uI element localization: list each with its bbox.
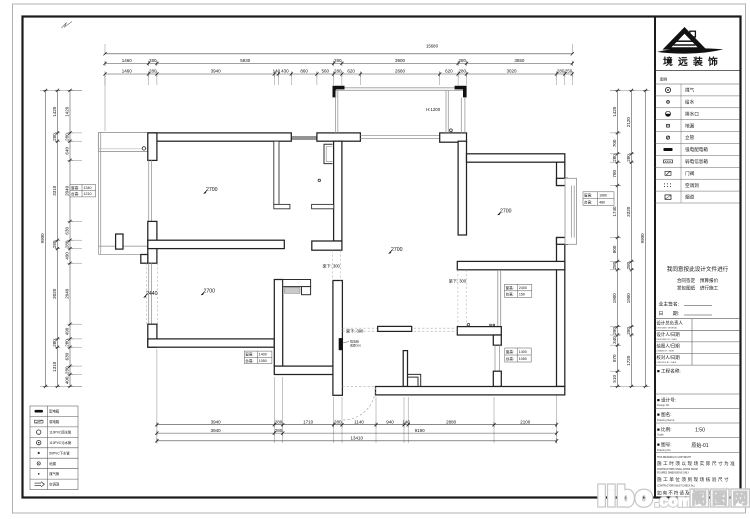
svg-text:我同意按此设计文件进行: 我同意按此设计文件进行: [667, 265, 729, 273]
svg-text:780: 780: [612, 170, 617, 178]
svg-text:地漏: 地漏: [685, 122, 695, 129]
svg-text:5930: 5930: [240, 58, 251, 63]
svg-text:1460: 1460: [122, 58, 133, 63]
svg-text:2660: 2660: [395, 69, 406, 74]
svg-text:280: 280: [334, 58, 342, 63]
svg-text:280: 280: [459, 69, 467, 74]
svg-text:15680: 15680: [426, 43, 439, 48]
svg-text:1400: 1400: [259, 353, 267, 357]
svg-text:2700: 2700: [204, 289, 216, 295]
svg-text:3940: 3940: [211, 69, 222, 74]
svg-text:560: 560: [321, 69, 329, 74]
svg-text:280: 280: [275, 428, 283, 433]
svg-text:DRAWN BY / DATE: DRAWN BY / DATE: [657, 350, 675, 353]
svg-text:设计总负责人: 设计总负责人: [657, 319, 684, 326]
svg-text:280: 280: [52, 133, 57, 141]
svg-text:2440: 2440: [146, 291, 158, 297]
svg-text:2100: 2100: [520, 419, 531, 424]
svg-text:1420: 1420: [612, 106, 617, 117]
svg-text:490: 490: [65, 327, 70, 335]
svg-text:280: 280: [334, 419, 342, 424]
svg-text:台高:: 台高:: [506, 356, 514, 361]
svg-text:1050: 1050: [259, 359, 267, 363]
svg-text:配电箱: 配电箱: [49, 409, 60, 414]
svg-text:台高:: 台高:: [584, 199, 592, 204]
svg-text:280: 280: [612, 154, 617, 162]
svg-text:弱电箱: 弱电箱: [49, 419, 60, 424]
svg-text:弱电信息箱: 弱电信息箱: [685, 158, 708, 165]
svg-text:设计人/日期: 设计人/日期: [657, 331, 681, 338]
svg-text:1050: 1050: [519, 357, 527, 361]
svg-text:梁下: 300: 梁下: 300: [323, 262, 341, 268]
svg-text:2880: 2880: [446, 419, 457, 424]
svg-text:3020: 3020: [506, 69, 517, 74]
svg-text:1900: 1900: [626, 293, 631, 304]
svg-text:施工时须以现场实际尺寸为准: 施工时须以现场实际尺寸为准: [657, 460, 736, 467]
svg-text:280: 280: [52, 339, 57, 347]
svg-text:110PVC雨水管: 110PVC雨水管: [49, 429, 72, 434]
svg-text:340: 340: [612, 336, 617, 344]
svg-text:原始-01: 原始-01: [691, 442, 708, 449]
svg-text:700: 700: [612, 139, 617, 147]
svg-text:Drawing Name:: Drawing Name:: [657, 418, 675, 422]
svg-text:140: 140: [402, 419, 410, 424]
svg-text:网: 网: [733, 490, 749, 508]
svg-text:1720: 1720: [626, 355, 631, 366]
svg-text:9900: 9900: [40, 233, 45, 244]
svg-text:2700: 2700: [391, 247, 403, 253]
svg-text:窗高:: 窗高:: [71, 185, 79, 190]
svg-text:强电配电箱: 强电配电箱: [685, 146, 708, 153]
svg-text:490: 490: [65, 252, 70, 260]
svg-text:3900: 3900: [395, 58, 406, 63]
svg-text:施工单位须到现场核验尺寸: 施工单位须到现场核验尺寸: [657, 476, 730, 483]
svg-text:430: 430: [281, 69, 289, 74]
svg-text:1710: 1710: [303, 419, 314, 424]
svg-text:1140: 1140: [354, 419, 364, 424]
svg-text:9190: 9190: [415, 428, 426, 433]
svg-text:CONTRACTORS MUST CHECK ALL: CONTRACTORS MUST CHECK ALL: [657, 485, 696, 488]
svg-text:1420: 1420: [65, 106, 70, 117]
svg-text:2700: 2700: [206, 187, 218, 193]
svg-text:940: 940: [386, 419, 394, 424]
svg-text:800: 800: [612, 245, 617, 253]
svg-text:2040: 2040: [65, 288, 70, 299]
svg-text:630: 630: [65, 227, 70, 235]
svg-text:立管: 立管: [685, 134, 695, 141]
svg-text:DESIGNED GENERAL: DESIGNED GENERAL: [657, 326, 678, 329]
svg-text:台高:: 台高:: [245, 358, 253, 363]
svg-text:280: 280: [557, 69, 565, 74]
svg-text:630: 630: [65, 352, 70, 360]
svg-text:给水: 给水: [685, 99, 695, 106]
svg-text:640: 640: [65, 147, 70, 155]
svg-text:窗高:: 窗高:: [245, 352, 253, 357]
svg-text:梁下: 300: 梁下: 300: [346, 327, 364, 333]
svg-text:2120: 2120: [626, 117, 631, 128]
svg-text:280: 280: [65, 366, 70, 374]
svg-text:280: 280: [626, 327, 631, 335]
svg-text:空调洞: 空调洞: [685, 182, 699, 189]
svg-text:620: 620: [347, 69, 355, 74]
svg-text:DESIGNED BY / DATE: DESIGNED BY / DATE: [657, 338, 678, 341]
svg-text:.com: .com: [655, 493, 692, 510]
svg-text:860: 860: [300, 69, 308, 74]
svg-text:CONTRACTORS SHALL WORK FROM: CONTRACTORS SHALL WORK FROM: [657, 468, 698, 471]
svg-text:510: 510: [612, 375, 617, 383]
svg-text:梁下: 300: 梁下: 300: [449, 278, 467, 284]
svg-text:合同签定 预算报价: 合同签定 预算报价: [677, 277, 719, 284]
svg-text:1740: 1740: [612, 206, 617, 217]
svg-text:日 期:: 日 期:: [659, 311, 680, 317]
svg-text:Scale:: Scale:: [657, 433, 664, 437]
svg-text:3940: 3940: [211, 419, 222, 424]
svg-text:250: 250: [565, 69, 573, 74]
svg-text:空调洞: 空调洞: [49, 482, 60, 487]
svg-text:280: 280: [334, 69, 342, 74]
svg-text:280: 280: [149, 69, 157, 74]
svg-text:110PVC污水管: 110PVC污水管: [49, 440, 72, 445]
svg-text:280: 280: [65, 133, 70, 141]
svg-text:1310: 1310: [52, 361, 57, 372]
svg-text:140: 140: [273, 69, 281, 74]
svg-text:3550: 3550: [514, 58, 525, 63]
svg-text:■ 设计号:: ■ 设计号:: [657, 396, 676, 403]
svg-text:境远装饰: 境远装饰: [663, 55, 723, 68]
svg-text:2400: 2400: [519, 286, 527, 290]
svg-text:台高:: 台高:: [506, 291, 514, 296]
svg-text:1900: 1900: [612, 293, 617, 304]
svg-text:3940: 3940: [211, 428, 222, 433]
svg-text:台高:: 台高:: [71, 191, 79, 196]
svg-text:400: 400: [65, 376, 70, 384]
svg-text:■ 比例:: ■ 比例:: [657, 426, 672, 433]
svg-text:1960: 1960: [599, 194, 607, 198]
svg-text:280: 280: [65, 240, 70, 248]
svg-text:绘图人/日期: 绘图人/日期: [657, 343, 681, 350]
svg-text:480: 480: [599, 200, 605, 204]
svg-text:煤气: 煤气: [685, 87, 695, 94]
svg-text:1420: 1420: [52, 106, 57, 117]
svg-text:50PVC下水管: 50PVC下水管: [49, 450, 70, 455]
svg-text:3020: 3020: [52, 288, 57, 299]
svg-text:排水口: 排水口: [685, 110, 699, 117]
svg-text:2040: 2040: [65, 185, 70, 196]
svg-text:窗高:: 窗高:: [506, 285, 514, 290]
svg-text:■ 工程名称:: ■ 工程名称:: [657, 368, 681, 375]
svg-text:13410: 13410: [351, 436, 364, 441]
svg-text:280: 280: [149, 58, 157, 63]
svg-text:校对人/日期: 校对人/日期: [657, 354, 681, 361]
svg-text:THIS DRAWING IS COPYRIGHT: THIS DRAWING IS COPYRIGHT: [657, 456, 692, 459]
svg-text:窗高:: 窗高:: [584, 193, 592, 198]
svg-text:1210: 1210: [84, 192, 92, 196]
svg-text:1400: 1400: [519, 350, 527, 354]
svg-text:窗高:: 窗高:: [506, 349, 514, 354]
svg-text:280: 280: [275, 419, 283, 424]
svg-text:280: 280: [626, 261, 631, 269]
svg-text:煤气管: 煤气管: [49, 471, 60, 476]
svg-text:280: 280: [612, 327, 617, 335]
svg-text:150: 150: [519, 292, 525, 296]
svg-text:9900: 9900: [640, 233, 645, 244]
svg-text:1340: 1340: [84, 186, 92, 190]
svg-text:业主签名:: 业主签名:: [659, 301, 680, 308]
svg-text:阁: 阁: [692, 489, 708, 508]
svg-text:发包图纸 进行施工: 发包图纸 进行施工: [677, 285, 719, 292]
svg-text:底距300: 底距300: [350, 343, 361, 348]
svg-text:280: 280: [626, 154, 631, 162]
svg-text:1460: 1460: [122, 69, 133, 74]
svg-text:3320: 3320: [626, 206, 631, 217]
svg-text:280: 280: [612, 261, 617, 269]
svg-text:地漏: 地漏: [49, 461, 56, 466]
svg-text:280: 280: [52, 240, 57, 248]
svg-text:Drawing No:: Drawing No:: [657, 448, 672, 452]
svg-text:870: 870: [612, 354, 617, 362]
svg-text:2700: 2700: [500, 209, 512, 215]
svg-text:图例: 图例: [660, 77, 668, 82]
svg-text:1:50: 1:50: [695, 428, 705, 434]
svg-text:烟道: 烟道: [685, 194, 695, 201]
svg-text:3310: 3310: [52, 185, 57, 196]
svg-text:280: 280: [65, 339, 70, 347]
svg-text:280: 280: [459, 58, 467, 63]
svg-text:FIGURES DIMENSIONS ONLY: FIGURES DIMENSIONS ONLY: [657, 472, 690, 474]
svg-text:图: 图: [712, 490, 728, 508]
svg-text:门阀: 门阀: [685, 170, 695, 177]
svg-text:H:1200: H:1200: [426, 107, 441, 112]
svg-text:Design No:: Design No:: [657, 403, 670, 407]
svg-text:libo: libo: [598, 481, 654, 511]
svg-text:■ 图名:: ■ 图名:: [657, 411, 672, 418]
svg-text:620: 620: [445, 69, 453, 74]
svg-text:CHECKED BY / DATE: CHECKED BY / DATE: [657, 361, 677, 364]
